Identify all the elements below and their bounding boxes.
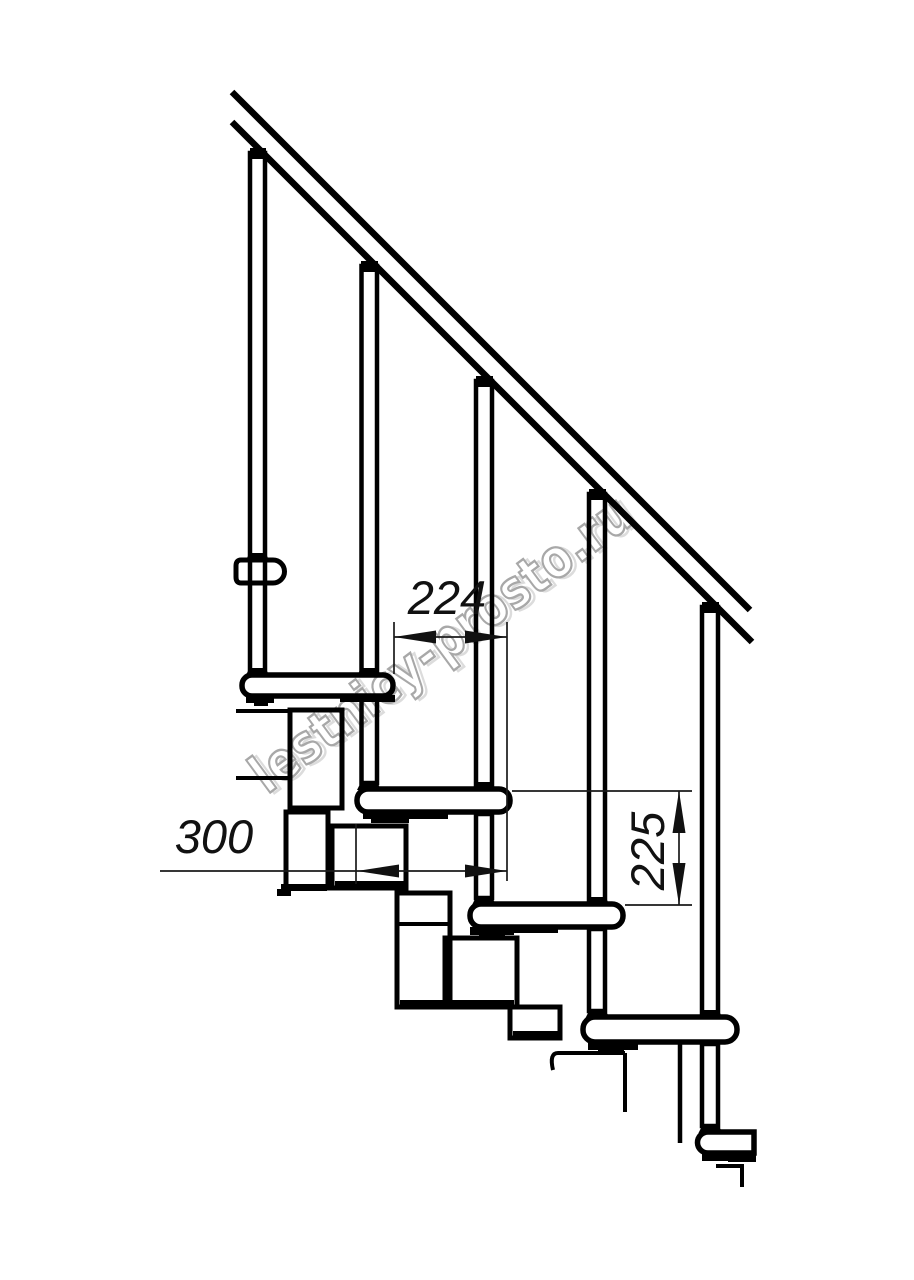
cut-fragments: [552, 1042, 742, 1187]
technical-drawing-page: lestnicy-prosto.ru lestnicy-prosto.ru: [0, 0, 914, 1280]
arrow-up: [673, 791, 686, 833]
support-tube-4: [702, 1044, 718, 1126]
module-3a-base: [448, 1000, 514, 1007]
dimension-300-label: 300: [175, 810, 253, 863]
handrail-bracket: [236, 560, 285, 583]
module-1b-foot: [277, 889, 291, 896]
module-3b-base: [513, 1031, 559, 1038]
staircase-technical-drawing: lestnicy-prosto.ru lestnicy-prosto.ru: [0, 0, 914, 1280]
dimension-224-label: 224: [407, 571, 486, 624]
baluster-5: [702, 607, 718, 1017]
arrow-down: [673, 863, 686, 905]
watermark-text: lestnicy-prosto.ru: [239, 483, 645, 806]
dimension-225: 225: [512, 791, 692, 905]
support-tube-2: [476, 814, 492, 898]
module-2a-base: [335, 881, 404, 888]
tread-5-partial: [698, 1132, 755, 1153]
baluster-1-collar: [246, 553, 270, 561]
baluster-1: [250, 153, 265, 675]
module-2b-base: [400, 1000, 448, 1007]
support-tube-3: [589, 929, 605, 1011]
baluster-2: [362, 266, 378, 675]
dimension-225-label: 225: [621, 811, 674, 891]
arrow-right: [465, 865, 507, 878]
